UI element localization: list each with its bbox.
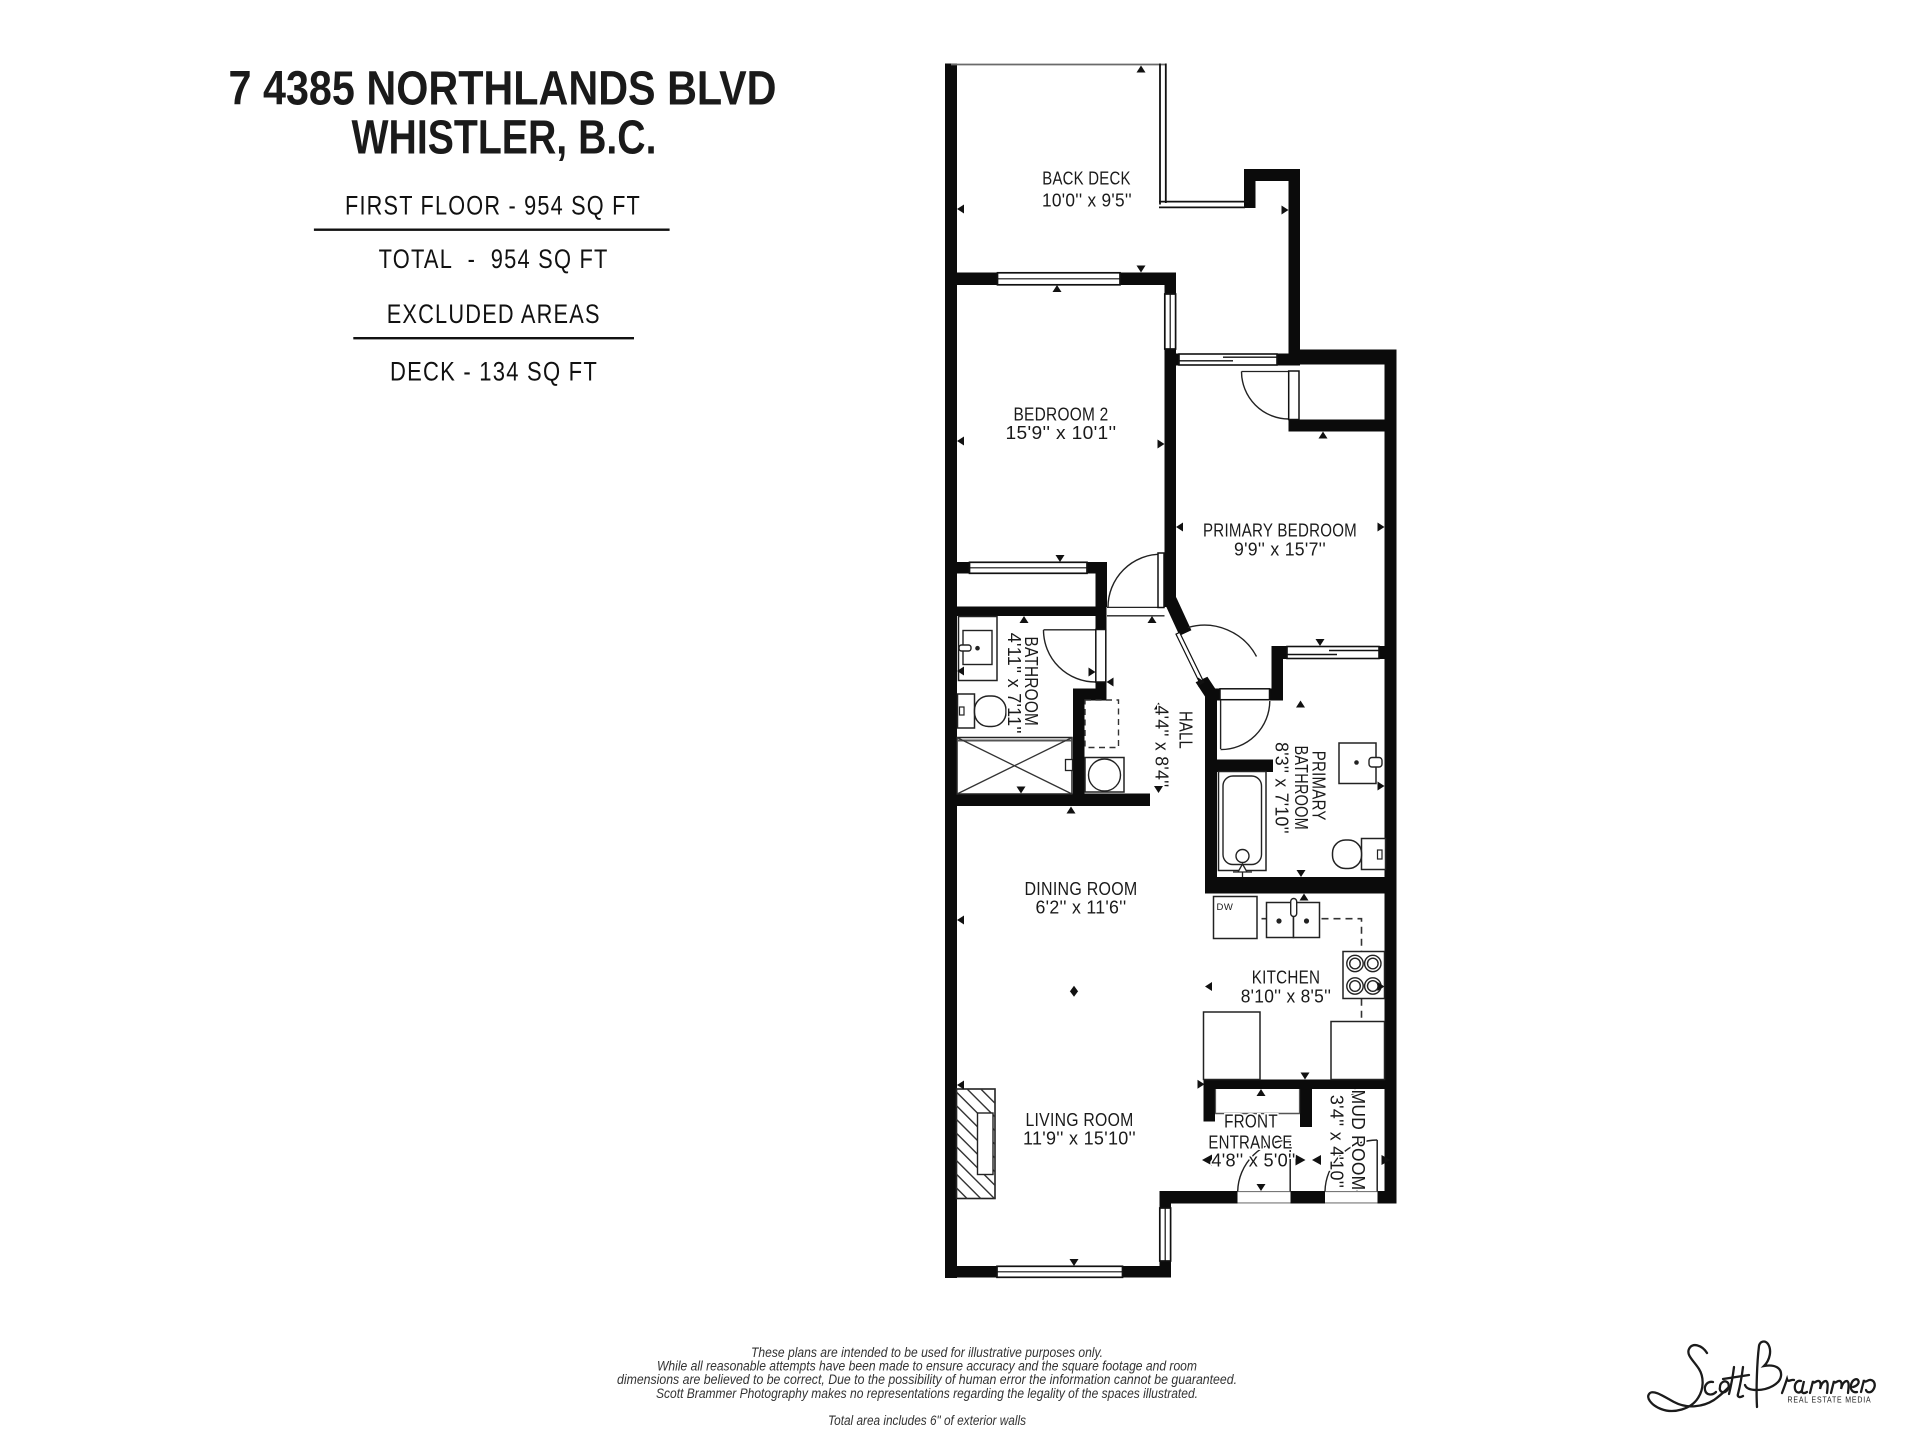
svg-text:FIRST FLOOR - 954 SQ FT: FIRST FLOOR - 954 SQ FT [345, 190, 641, 220]
svg-text:EXCLUDED AREAS: EXCLUDED AREAS [387, 299, 601, 329]
svg-text:KITCHEN: KITCHEN [1252, 967, 1320, 988]
svg-text:15'9'' x 10'1'': 15'9'' x 10'1'' [1006, 422, 1117, 443]
svg-text:HALL: HALL [1175, 711, 1196, 749]
svg-text:FRONT: FRONT [1224, 1111, 1278, 1132]
svg-text:7 4385 NORTHLANDS BLVD: 7 4385 NORTHLANDS BLVD [229, 63, 777, 116]
svg-text:Total area includes 6" of exte: Total area includes 6" of exterior walls [828, 1413, 1026, 1428]
svg-text:TOTAL - 954 SQ FT: TOTAL - 954 SQ FT [379, 244, 609, 274]
svg-text:4'11'' x 7'11'': 4'11'' x 7'11'' [1004, 633, 1025, 734]
svg-text:These plans are intended to be: These plans are intended to be used for … [751, 1345, 1103, 1360]
svg-text:BACK DECK: BACK DECK [1042, 168, 1131, 189]
svg-text:4'8'' x 5'0'': 4'8'' x 5'0'' [1211, 1150, 1295, 1171]
svg-text:8'3'' x 7'10'': 8'3'' x 7'10'' [1271, 742, 1292, 834]
svg-text:WHISTLER, B.C.: WHISTLER, B.C. [352, 112, 657, 165]
svg-text:REAL ESTATE MEDIA: REAL ESTATE MEDIA [1788, 1394, 1872, 1404]
svg-text:PRIMARY BEDROOM: PRIMARY BEDROOM [1203, 520, 1357, 541]
svg-text:4'4'' x 8'4'': 4'4'' x 8'4'' [1151, 706, 1172, 788]
svg-text:MUD ROOM: MUD ROOM [1348, 1090, 1369, 1191]
svg-text:BATHROOM: BATHROOM [1291, 745, 1312, 830]
svg-text:3'4'' x 4'10'': 3'4'' x 4'10'' [1326, 1095, 1347, 1188]
svg-text:8'10'' x 8'5'': 8'10'' x 8'5'' [1241, 986, 1332, 1007]
svg-text:Scott Brammer Photography make: Scott Brammer Photography makes no repre… [656, 1386, 1198, 1401]
svg-text:10'0'' x 9'5'': 10'0'' x 9'5'' [1042, 190, 1132, 211]
svg-text:DW: DW [1217, 902, 1234, 913]
svg-text:DECK - 134 SQ FT: DECK - 134 SQ FT [390, 357, 598, 387]
svg-text:9'9'' x 15'7'': 9'9'' x 15'7'' [1234, 539, 1326, 560]
svg-text:6'2'' x 11'6'': 6'2'' x 11'6'' [1036, 897, 1127, 918]
svg-text:11'9'' x 15'10'': 11'9'' x 15'10'' [1023, 1128, 1136, 1149]
